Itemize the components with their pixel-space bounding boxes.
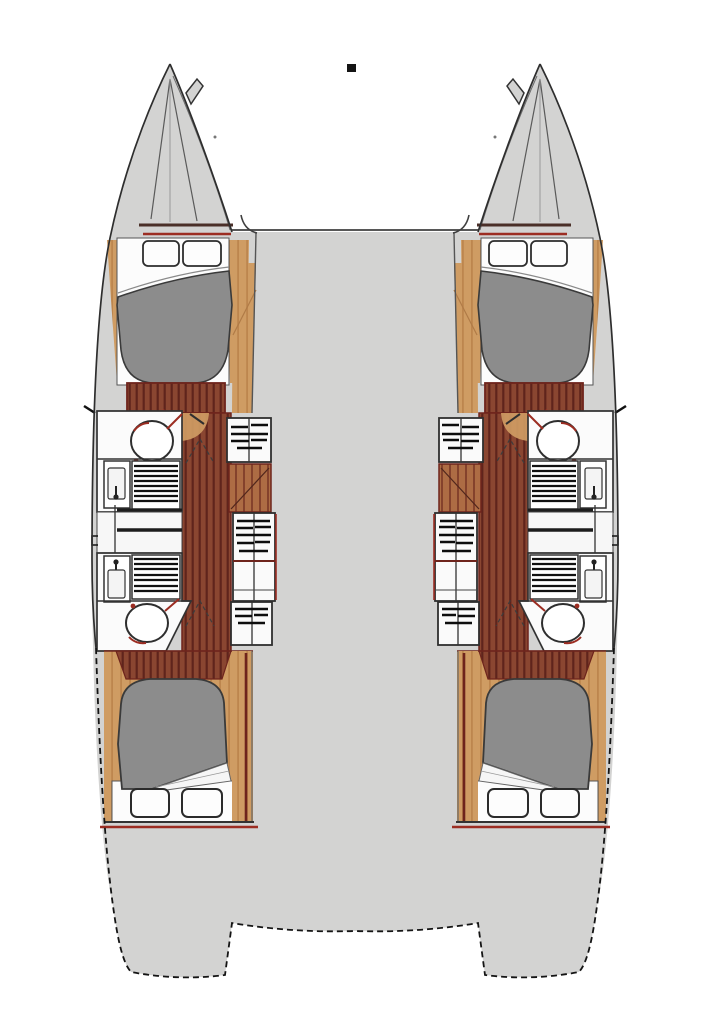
deck-fitting-dot (214, 136, 217, 139)
floorplan-canvas (0, 0, 710, 1024)
cabin-wall-inboard (232, 651, 252, 822)
shower-grate (132, 555, 180, 599)
port-forward-cabin (107, 233, 256, 413)
port-mid-cabinets (92, 505, 182, 559)
bow-anchor-fitting (186, 79, 203, 104)
pillow (182, 789, 222, 817)
port-companionway-storage (227, 418, 276, 645)
faucet-knob (113, 494, 118, 499)
port-aft-cabin (100, 651, 258, 827)
cabin-wood-floor (127, 383, 225, 413)
sink-basin (108, 570, 125, 598)
port-forward-head (84, 406, 182, 512)
pillow (131, 789, 169, 817)
toilet (126, 604, 168, 642)
pillow (143, 241, 179, 266)
mast-position-marker (347, 64, 356, 72)
pillow (183, 241, 221, 266)
shower-grate-slats (134, 559, 178, 591)
catamaran-deck-plan (0, 0, 710, 1024)
corridor-wood-floor (182, 413, 231, 652)
hull-edge-tick (84, 406, 95, 413)
cabin-wood-floor (116, 651, 231, 679)
cabinet-strip (97, 512, 182, 553)
toilet-red-dot (131, 604, 136, 609)
